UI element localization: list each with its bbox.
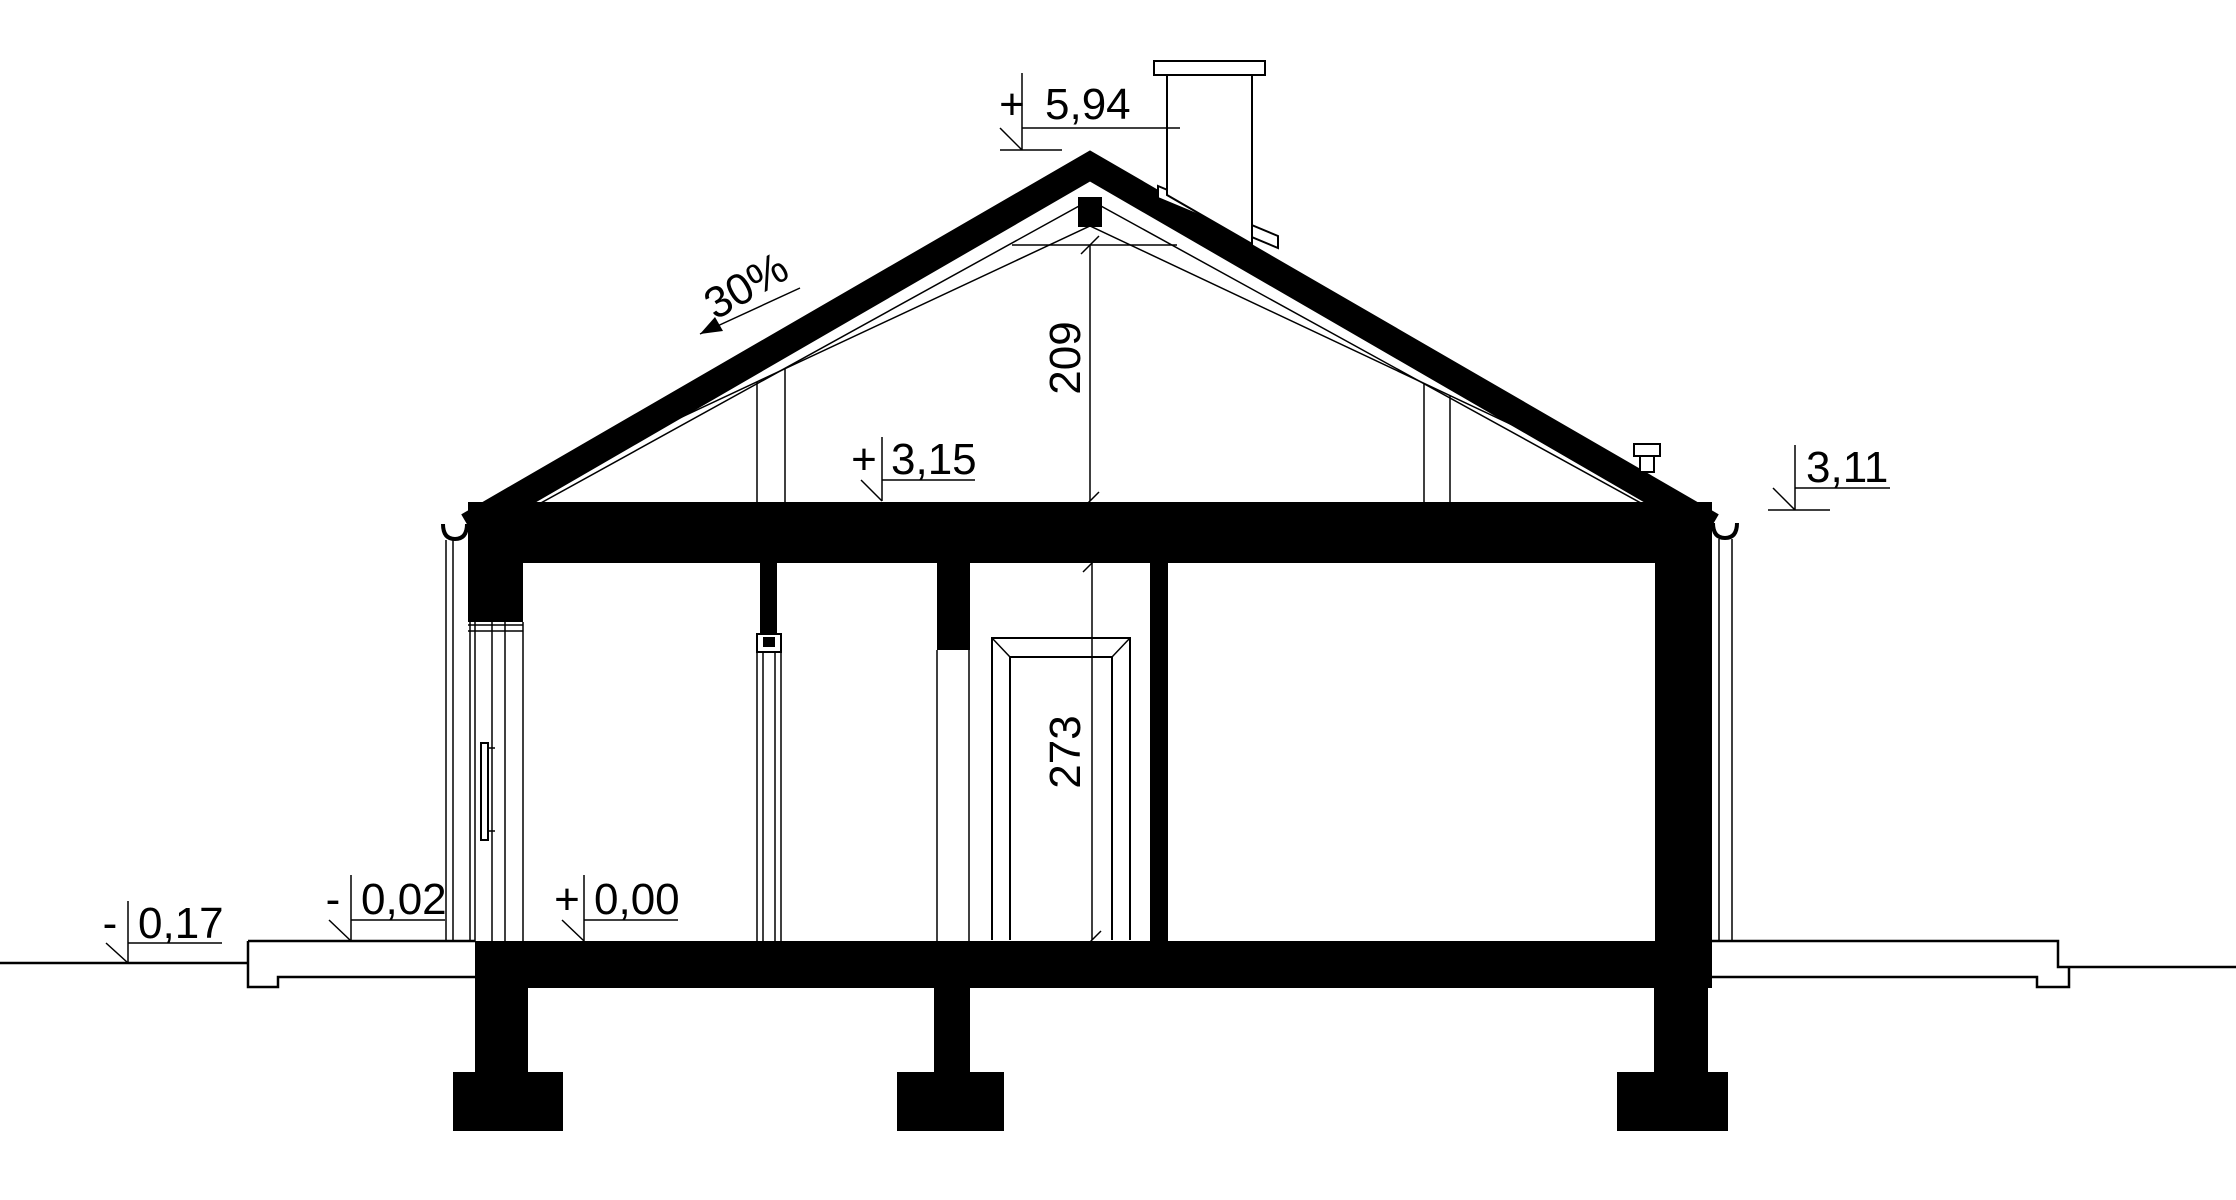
ground-level-marker: - 0,17 bbox=[103, 899, 224, 963]
foundation-left bbox=[453, 988, 563, 1131]
ground-level-sign: - bbox=[103, 899, 118, 948]
ground-level-value: 0,17 bbox=[138, 899, 224, 948]
ceiling-level-sign: + bbox=[851, 435, 877, 484]
room-height-value: 273 bbox=[1041, 715, 1090, 788]
chimney-cap bbox=[1154, 61, 1265, 75]
downpipe-left bbox=[446, 540, 453, 941]
attic-height-dimension: 209 bbox=[1041, 236, 1099, 510]
glazed-door-left bbox=[468, 622, 523, 941]
roof-slope-label: 30% bbox=[696, 243, 800, 334]
floor-slab bbox=[475, 941, 1712, 988]
ridge-level-sign: + bbox=[999, 80, 1025, 129]
section-canvas: 209 273 + 5,94 + 3,15 3,11 - 0,17 bbox=[0, 0, 2236, 1200]
foundation-right bbox=[1617, 988, 1728, 1131]
downpipe-right bbox=[1719, 539, 1732, 941]
wall-head-left bbox=[468, 502, 523, 622]
room-height-dimension: 273 bbox=[1041, 554, 1101, 949]
ceiling-slab bbox=[468, 502, 1712, 563]
attic-post-left bbox=[757, 369, 785, 502]
porch-level-sign: - bbox=[326, 875, 341, 924]
porch-level-marker: - 0,02 bbox=[326, 875, 447, 941]
floor-level-value: 0,00 bbox=[594, 875, 680, 924]
exterior-wall-right bbox=[1655, 503, 1712, 988]
eaves-level-marker: 3,11 bbox=[1768, 443, 1890, 510]
ridge-beam bbox=[1078, 197, 1102, 227]
ridge-level-value: 5,94 bbox=[1045, 80, 1131, 129]
porch-level-value: 0,02 bbox=[361, 875, 447, 924]
attic-post-right bbox=[1424, 383, 1450, 502]
ridge-level-marker: + 5,94 bbox=[999, 73, 1180, 150]
interior-wall bbox=[1150, 563, 1168, 941]
partition-wall-door-opening bbox=[937, 563, 970, 941]
eaves-level-value: 3,11 bbox=[1806, 443, 1888, 492]
terrace-slab-right bbox=[1712, 941, 2236, 987]
house-cross-section-drawing: 209 273 + 5,94 + 3,15 3,11 - 0,17 bbox=[0, 0, 2236, 1200]
ceiling-level-value: 3,15 bbox=[891, 435, 977, 484]
attic-height-value: 209 bbox=[1041, 321, 1090, 394]
glazed-partition bbox=[757, 563, 781, 941]
door-handle bbox=[481, 743, 495, 840]
gutter-right bbox=[1713, 523, 1737, 538]
gutter-left bbox=[443, 524, 467, 539]
porch-slab-left bbox=[248, 941, 475, 987]
ceiling-level-marker: + 3,15 bbox=[851, 435, 976, 501]
foundation-middle bbox=[897, 988, 1004, 1131]
floor-level-marker: + 0,00 bbox=[554, 875, 679, 941]
floor-level-sign: + bbox=[554, 875, 580, 924]
roof-slope-value: 30% bbox=[696, 243, 797, 329]
